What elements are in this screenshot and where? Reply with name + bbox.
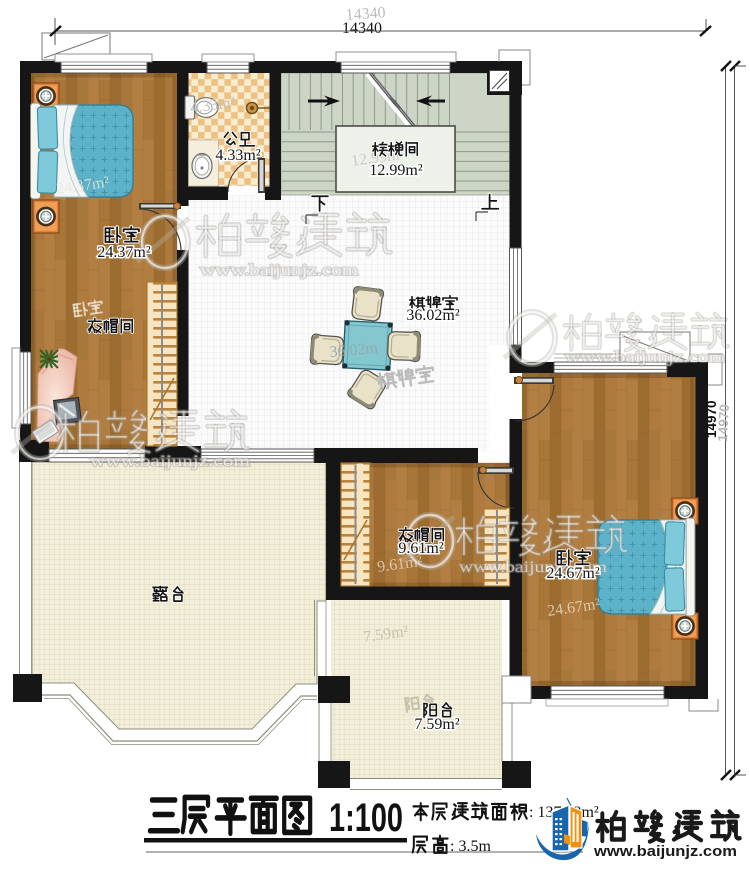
svg-text:www.baijunjz.com: www.baijunjz.com xyxy=(593,843,737,860)
svg-text:9.61m²: 9.61m² xyxy=(398,540,443,557)
svg-text:: 3.5m: : 3.5m xyxy=(450,838,491,855)
svg-text:7.59m²: 7.59m² xyxy=(414,716,459,733)
svg-text:14970: 14970 xyxy=(715,404,732,442)
svg-text:www.baijunjz.com: www.baijunjz.com xyxy=(565,349,726,366)
svg-text:24.67m²: 24.67m² xyxy=(546,565,599,582)
svg-text:1:100: 1:100 xyxy=(329,796,403,840)
svg-text:www.baijunjz.com: www.baijunjz.com xyxy=(200,262,359,279)
svg-text:12.99m²: 12.99m² xyxy=(369,162,422,179)
svg-text:36.02m²: 36.02m² xyxy=(406,307,459,324)
svg-text:www.baijunjz.com: www.baijunjz.com xyxy=(90,453,251,470)
svg-text:14340: 14340 xyxy=(345,4,386,24)
svg-text:24.37m²: 24.37m² xyxy=(97,244,150,261)
svg-text:4.33m²: 4.33m² xyxy=(215,147,260,164)
